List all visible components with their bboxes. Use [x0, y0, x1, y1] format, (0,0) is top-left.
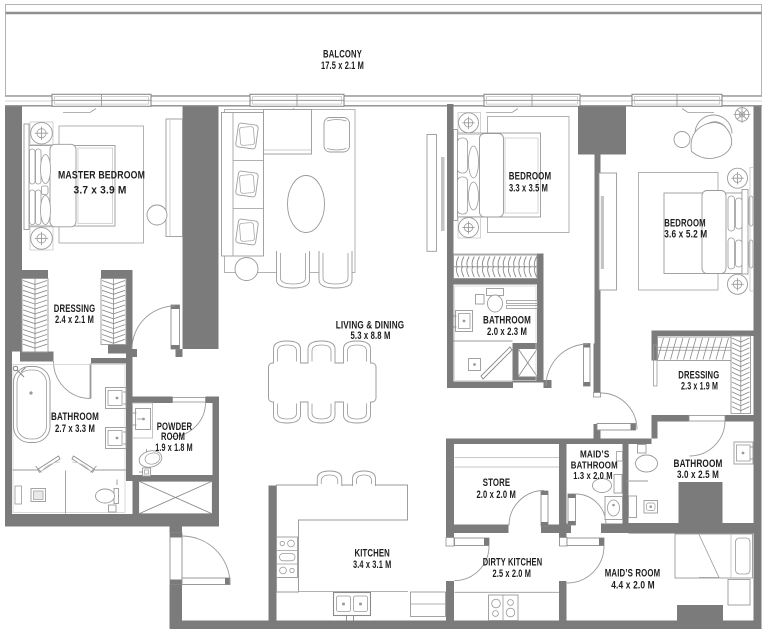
svg-text:5.3 x 8.8 M: 5.3 x 8.8 M — [351, 330, 391, 342]
svg-text:DRESSING: DRESSING — [54, 303, 96, 315]
svg-text:DIRTY KITCHEN: DIRTY KITCHEN — [483, 556, 543, 568]
svg-text:17.5 x 2.1 M: 17.5 x 2.1 M — [321, 60, 364, 72]
svg-text:3.0 x 2.5 M: 3.0 x 2.5 M — [677, 469, 719, 481]
svg-text:2.7 x 3.3 M: 2.7 x 3.3 M — [55, 423, 95, 435]
svg-text:MASTER BEDROOM: MASTER BEDROOM — [58, 169, 145, 181]
svg-text:2.4 x 2.1 M: 2.4 x 2.1 M — [55, 314, 94, 326]
svg-text:KITCHEN: KITCHEN — [354, 548, 390, 560]
svg-text:MAID’S: MAID’S — [580, 450, 610, 461]
svg-text:3.6 x 5.2 M: 3.6 x 5.2 M — [664, 228, 707, 240]
svg-text:4.4 x 2.0 M: 4.4 x 2.0 M — [611, 579, 655, 591]
svg-text:BATHROOM: BATHROOM — [571, 460, 618, 471]
svg-text:2.0 x 2.3 M: 2.0 x 2.3 M — [487, 326, 527, 338]
svg-text:2.5 x 2.0 M: 2.5 x 2.0 M — [493, 568, 532, 580]
svg-text:3.7 x 3.9 M: 3.7 x 3.9 M — [74, 185, 127, 197]
svg-text:2.3 x 1.9 M: 2.3 x 1.9 M — [681, 381, 718, 393]
svg-text:BALCONY: BALCONY — [323, 48, 362, 60]
svg-text:BATHROOM: BATHROOM — [51, 411, 99, 423]
svg-text:MAID’S ROOM: MAID’S ROOM — [605, 567, 661, 579]
svg-text:BATHROOM: BATHROOM — [483, 314, 531, 326]
svg-text:BEDROOM: BEDROOM — [509, 171, 552, 183]
svg-text:2.0 x 2.0 M: 2.0 x 2.0 M — [476, 489, 516, 501]
svg-text:DRESSING: DRESSING — [678, 369, 719, 381]
svg-text:3.3 x 3.5 M: 3.3 x 3.5 M — [509, 182, 548, 194]
svg-text:3.4 x 3.1 M: 3.4 x 3.1 M — [353, 559, 392, 571]
svg-text:1.3 x 2.0 M: 1.3 x 2.0 M — [573, 471, 613, 482]
svg-text:1.9 x 1.8 M: 1.9 x 1.8 M — [155, 442, 193, 454]
svg-text:STORE: STORE — [483, 477, 511, 489]
